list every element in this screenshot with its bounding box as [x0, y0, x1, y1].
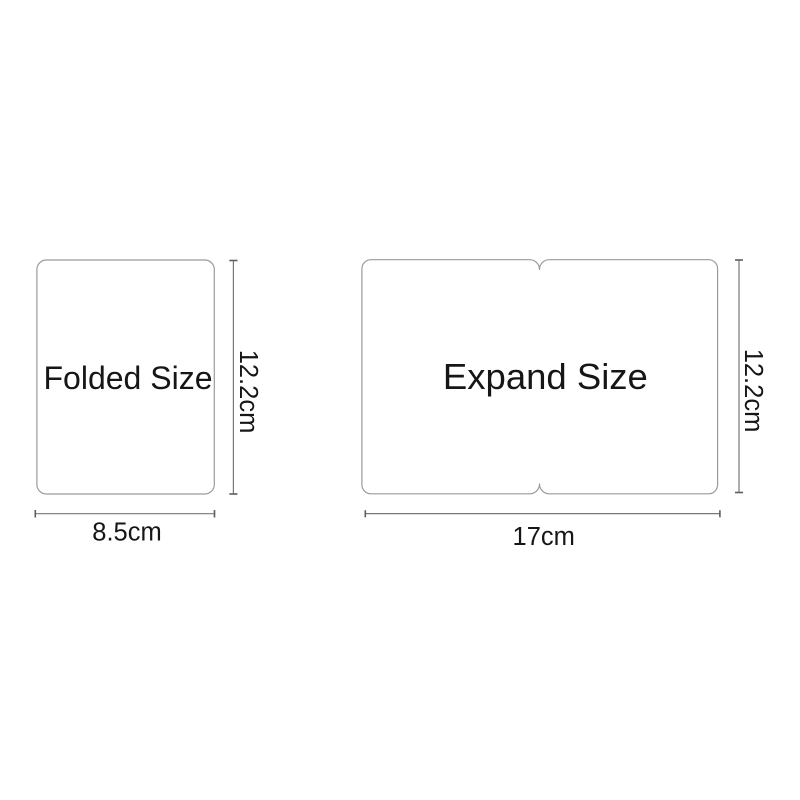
svg-text:Folded Size: Folded Size	[44, 360, 213, 396]
svg-text:17cm: 17cm	[513, 523, 575, 551]
svg-text:8.5cm: 8.5cm	[92, 519, 161, 547]
svg-text:Expand Size: Expand Size	[443, 356, 648, 397]
svg-text:12.2cm: 12.2cm	[739, 349, 767, 433]
svg-text:12.2cm: 12.2cm	[234, 350, 262, 434]
